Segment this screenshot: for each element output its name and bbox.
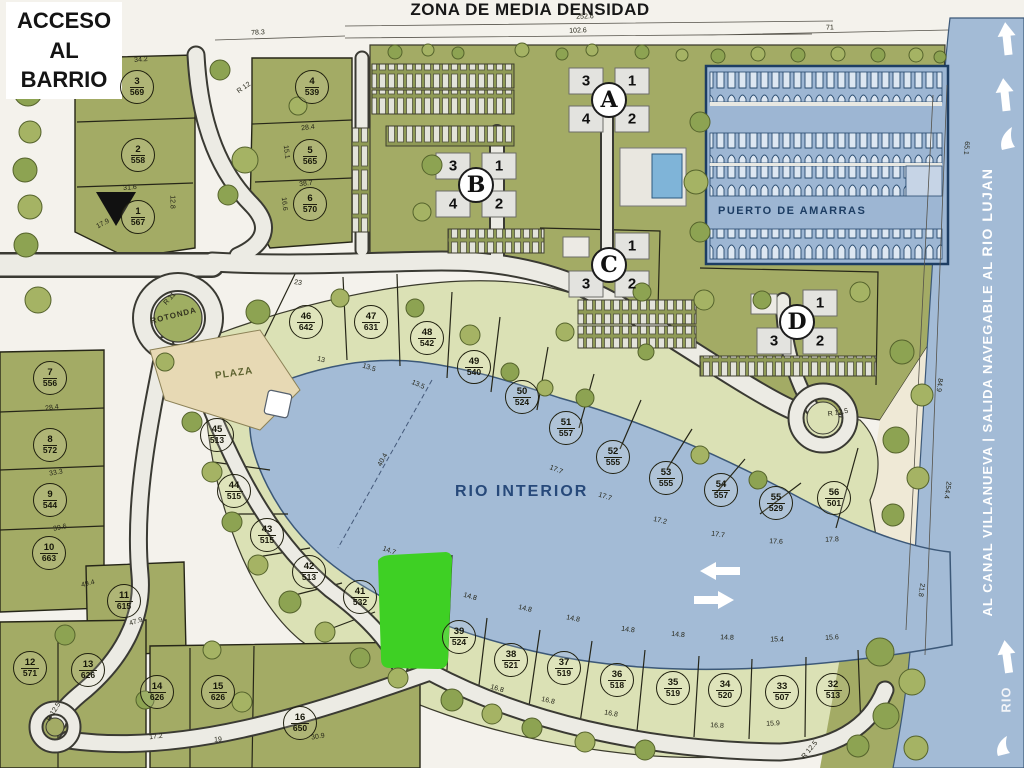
building-D-unit-2: 2 [816, 333, 824, 350]
dimension-label: 14.8 [671, 631, 685, 639]
lot-marker-2[interactable]: 2558 [121, 138, 155, 172]
lot-marker-36[interactable]: 36518 [600, 663, 634, 697]
lot-marker-15[interactable]: 15626 [201, 675, 235, 709]
river-direction-arrow-icon [996, 21, 1018, 59]
rio-label: RIO [999, 676, 1014, 724]
lot-marker-14[interactable]: 14626 [140, 675, 174, 709]
lot-marker-50[interactable]: 50524 [505, 380, 539, 414]
lot-marker-42[interactable]: 42513 [292, 555, 326, 589]
building-C-unit-2: 2 [628, 276, 636, 293]
dimension-label: 28.4 [301, 124, 315, 132]
lot-marker-6[interactable]: 6570 [293, 187, 327, 221]
dimension-label: 14.8 [720, 634, 734, 641]
building-B-unit-4: 4 [449, 196, 457, 213]
dimension-label: 19 [214, 736, 222, 744]
building-C-unit-3: 3 [582, 276, 590, 293]
dimension-label: 65.1 [962, 141, 970, 155]
lot-marker-55[interactable]: 55529 [759, 486, 793, 520]
dimension-label: 17.8 [825, 536, 839, 543]
building-D-unit-1: 1 [816, 295, 824, 312]
dimension-label: 15.9 [766, 720, 780, 727]
access-sign-line1: ACCESO [6, 6, 122, 36]
dimension-label: 252.6 [576, 13, 594, 21]
lot-marker-5[interactable]: 5565 [293, 139, 327, 173]
lot-marker-16[interactable]: 16650 [283, 706, 317, 740]
lot-marker-3[interactable]: 3569 [120, 70, 154, 104]
lot-marker-13[interactable]: 13626 [71, 653, 105, 687]
building-A-unit-2: 2 [628, 111, 636, 128]
dimension-label: 15.6 [825, 634, 839, 642]
lot-marker-38[interactable]: 38521 [494, 643, 528, 677]
lot-marker-10[interactable]: 10663 [32, 536, 66, 570]
lot-marker-11[interactable]: 11615 [107, 584, 141, 618]
building-A-unit-1: 1 [628, 73, 636, 90]
dimension-label: 16.6 [280, 197, 288, 211]
dimension-label: 15.1 [282, 145, 290, 159]
lot-marker-52[interactable]: 52555 [596, 440, 630, 474]
lot-marker-37[interactable]: 37519 [547, 651, 581, 685]
pool [652, 154, 682, 198]
lot-marker-56[interactable]: 56501 [817, 481, 851, 515]
dimension-label: 31.6 [123, 184, 137, 192]
building-B-marker[interactable]: B [458, 167, 494, 203]
dimension-label: 34.2 [134, 56, 148, 64]
dimension-label: 15.4 [770, 637, 784, 644]
rio-lujan-label: RIO LUJAN [979, 168, 995, 257]
lot-marker-43[interactable]: 43515 [250, 518, 284, 552]
dimension-label: 71 [826, 24, 834, 31]
site-plan: ZONA DE MEDIA DENSIDAD ACCESO AL BARRIO … [0, 0, 1024, 768]
river-direction-arrow-icon [994, 77, 1016, 115]
lot-marker-47[interactable]: 47631 [354, 305, 388, 339]
marina [706, 66, 948, 264]
building-D-unit-3: 3 [770, 333, 778, 350]
dimension-label: 12.8 [169, 195, 176, 209]
dimension-label: 13 [316, 356, 325, 365]
building-A-unit-3: 3 [582, 73, 590, 90]
lot-marker-4[interactable]: 4539 [295, 70, 329, 104]
lot-marker-33[interactable]: 33507 [765, 675, 799, 709]
lot-marker-9[interactable]: 9544 [33, 483, 67, 517]
access-sign-line3: BARRIO [6, 65, 122, 95]
lot-marker-35[interactable]: 35519 [656, 671, 690, 705]
puerto-de-amarras-label: PUERTO DE AMARRAS [718, 205, 866, 217]
lot-marker-41[interactable]: 41532 [343, 580, 377, 614]
lot-marker-34[interactable]: 34520 [708, 673, 742, 707]
lot-marker-53[interactable]: 53555 [649, 461, 683, 495]
building-B-unit-1: 1 [495, 158, 503, 175]
lot-marker-49[interactable]: 49540 [457, 350, 491, 384]
access-sign-line2: AL [6, 36, 122, 66]
lot-marker-46[interactable]: 46642 [289, 305, 323, 339]
dimension-label: 23 [294, 279, 303, 287]
lot-marker-32[interactable]: 32513 [816, 673, 850, 707]
lot-marker-54[interactable]: 54557 [704, 473, 738, 507]
lot-marker-44[interactable]: 44515 [217, 474, 251, 508]
gazebo [264, 390, 292, 418]
zone-banner: ZONA DE MEDIA DENSIDAD [330, 0, 730, 20]
building-D-marker[interactable]: D [779, 304, 815, 340]
building-C-marker[interactable]: C [591, 247, 627, 283]
building-B-unit-2: 2 [495, 196, 503, 213]
building-A-marker[interactable]: A [591, 82, 627, 118]
dimension-label: 16.8 [710, 722, 724, 730]
lot-marker-39[interactable]: 39524 [442, 620, 476, 654]
lot-marker-51[interactable]: 51557 [549, 411, 583, 445]
access-sign: ACCESO AL BARRIO [6, 2, 122, 99]
lot-marker-45[interactable]: 45513 [200, 418, 234, 452]
lot-marker-12[interactable]: 12571 [13, 651, 47, 685]
lot-marker-8[interactable]: 8572 [33, 428, 67, 462]
dimension-label: 78.3 [251, 29, 265, 37]
dimension-label: 17.2 [149, 733, 163, 741]
canal-navigation-label: AL CANAL VILLANUEVA | SALIDA NAVEGABLE A… [979, 92, 997, 692]
dimension-label: 102.6 [569, 27, 587, 35]
lot-marker-48[interactable]: 48542 [410, 321, 444, 355]
canal-label: AL CANAL VILLANUEVA | SALIDA NAVEGABLE A… [980, 256, 995, 616]
dimension-label: 17.6 [769, 538, 783, 546]
building-B-unit-3: 3 [449, 158, 457, 175]
lot-marker-1[interactable]: 1567 [121, 200, 155, 234]
highlighted-lot[interactable] [378, 552, 452, 669]
rio-interior-label: RIO INTERIOR [455, 483, 588, 501]
building-A-unit-4: 4 [582, 111, 590, 128]
lot-marker-7[interactable]: 7556 [33, 361, 67, 395]
building-C-unit-1: 1 [628, 238, 636, 255]
